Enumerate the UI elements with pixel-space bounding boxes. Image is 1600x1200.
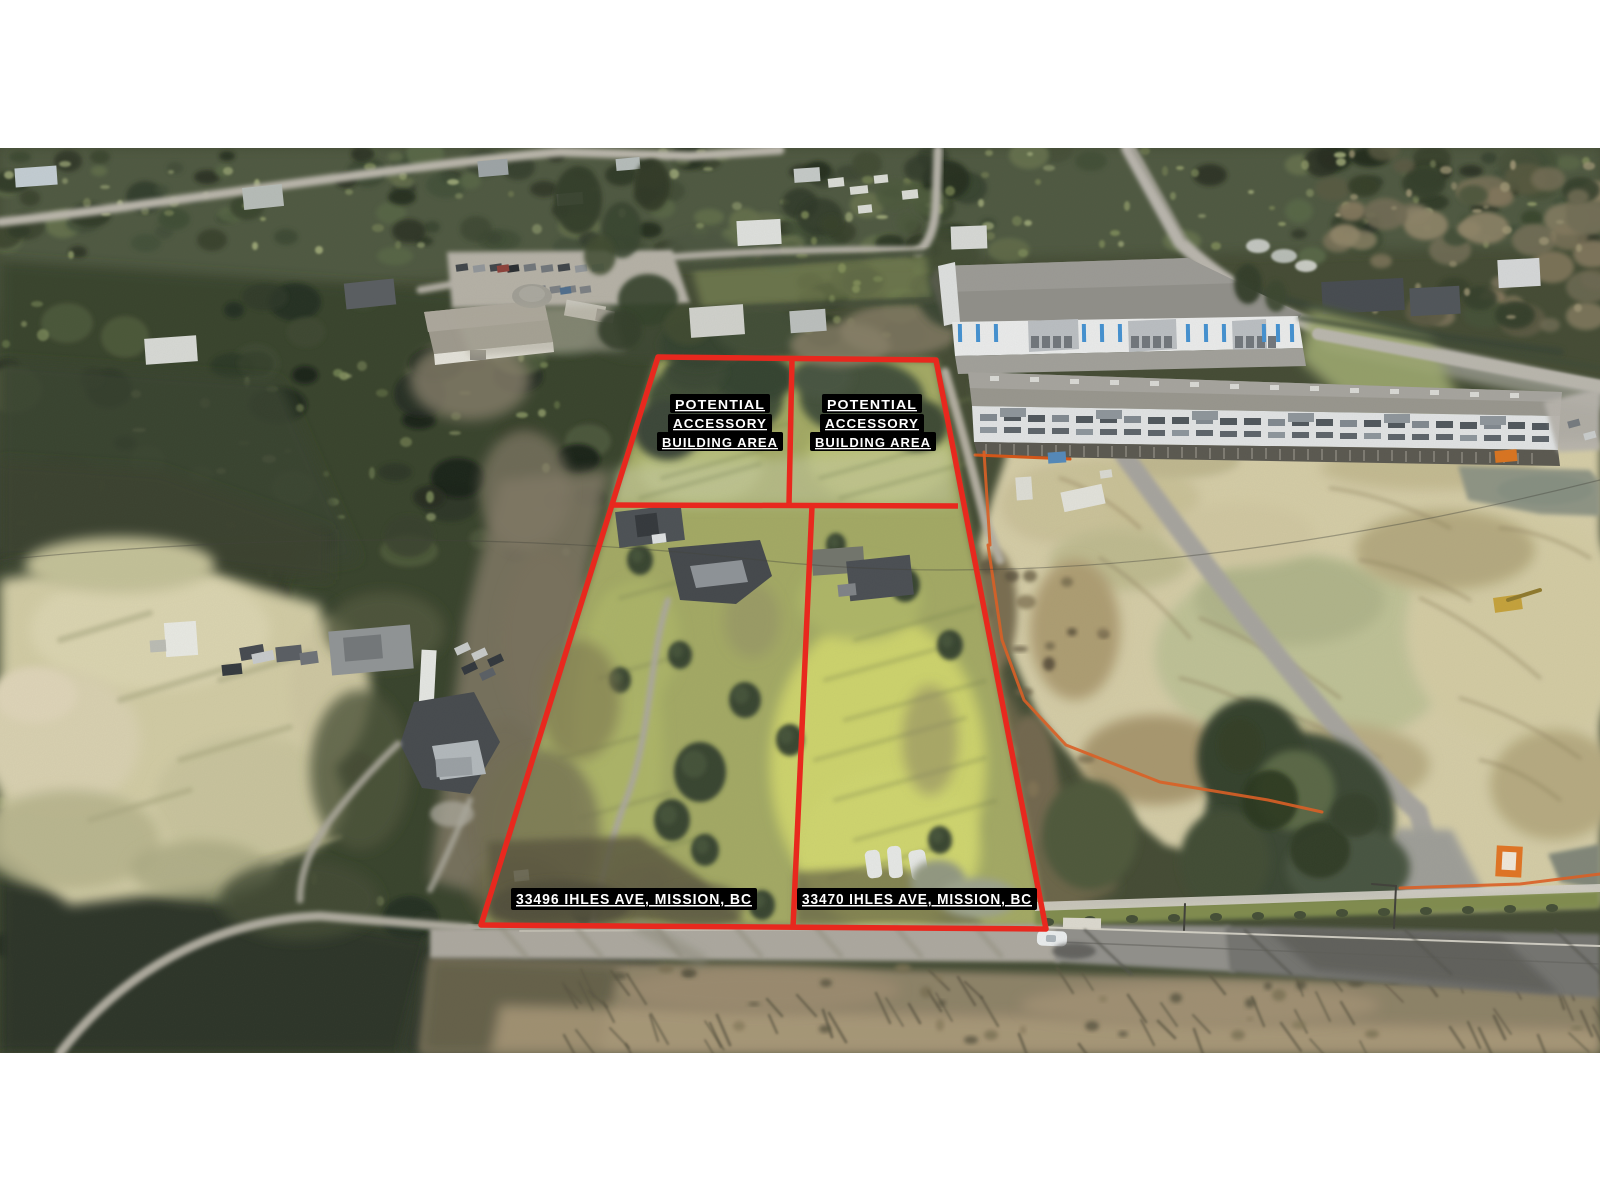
svg-text:ACCESSORY: ACCESSORY [673, 416, 767, 431]
svg-text:BUILDING AREA: BUILDING AREA [815, 435, 931, 450]
svg-text:POTENTIAL: POTENTIAL [827, 397, 917, 412]
svg-text:33470 IHLES AVE, MISSION, BC: 33470 IHLES AVE, MISSION, BC [802, 891, 1032, 908]
svg-text:POTENTIAL: POTENTIAL [675, 397, 765, 412]
svg-text:ACCESSORY: ACCESSORY [825, 416, 919, 431]
svg-text:BUILDING AREA: BUILDING AREA [662, 435, 778, 450]
svg-text:33496 IHLES AVE, MISSION, BC: 33496 IHLES AVE, MISSION, BC [516, 891, 752, 908]
